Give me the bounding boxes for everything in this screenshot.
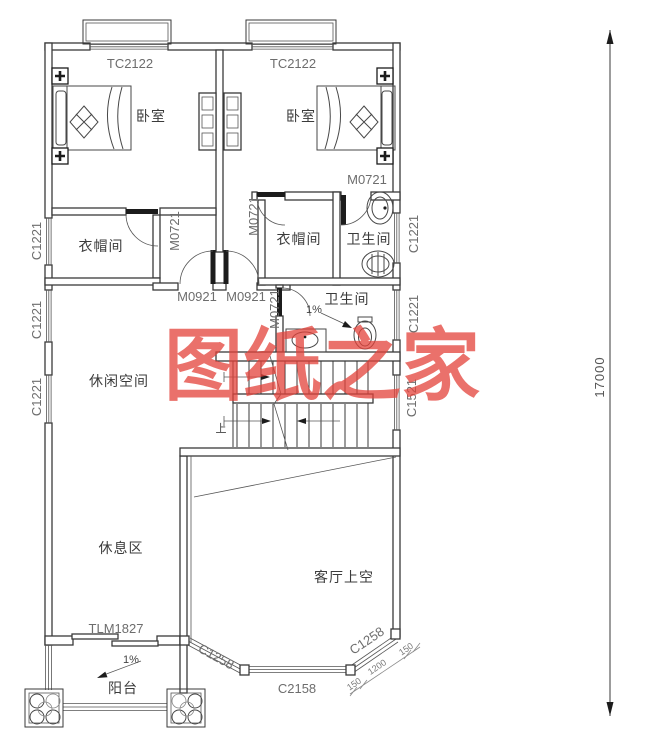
dimension-17000 [607, 30, 614, 716]
label-cloakroom-right: 衣帽间 [277, 231, 322, 247]
label-dim-1200: 1200 [366, 657, 388, 676]
right-wall-windows [395, 213, 400, 430]
door-m0921-right [224, 250, 260, 284]
slope-arrow-bathroom [321, 313, 352, 328]
label-balcony: 阳台 [108, 680, 138, 696]
label-door-m0721-bath-mid: M0721 [267, 289, 282, 329]
wardrobe-right [224, 93, 241, 150]
label-door-tlm1827: TLM1827 [89, 621, 144, 636]
label-bathroom-top: 卫生间 [347, 231, 392, 247]
label-door-m0721-bath-top: M0721 [347, 172, 387, 187]
door-bathroom-top [341, 195, 371, 225]
label-window-c2158: C2158 [278, 681, 316, 696]
staircase [224, 356, 373, 450]
label-bedroom-right: 卧室 [286, 108, 316, 124]
label-living-void: 客厅上空 [314, 569, 374, 585]
bay-window-top-left [83, 20, 171, 49]
label-leisure-space: 休闲空间 [89, 373, 149, 389]
door-m0921-left [180, 250, 216, 284]
label-door-m0921-right: M0921 [226, 289, 266, 304]
balcony-column-right [167, 689, 205, 727]
label-window-c1521: C1521 [404, 379, 419, 417]
label-slope-bath: 1% [306, 304, 322, 316]
floor-plan-canvas: TC2122 TC2122 卧室 卧室 M0721 M0721 M0721 M0… [0, 0, 650, 746]
floor-plan-drawing: TC2122 TC2122 卧室 卧室 M0721 M0721 M0721 M0… [0, 0, 650, 746]
bed-right [317, 86, 395, 150]
wardrobe-left [199, 93, 216, 150]
label-stairs-up: 上 [216, 422, 227, 435]
label-window-c1221-right-1: C1221 [406, 215, 421, 253]
label-dim-150-a: 150 [345, 676, 363, 693]
label-door-m0921-left: M0921 [177, 289, 217, 304]
left-wall-windows [47, 218, 52, 423]
label-door-m0721-cloak-left: M0721 [167, 211, 182, 251]
void-diagonal-line [194, 457, 396, 497]
balcony-column-left [25, 689, 63, 727]
label-bedroom-left: 卧室 [136, 108, 166, 124]
label-window-c1258-right: C1258 [347, 624, 387, 658]
label-door-m0721-cloak-right: M0721 [246, 196, 261, 236]
label-cloakroom-left: 衣帽间 [79, 238, 124, 254]
label-window-tc2122-left: TC2122 [107, 56, 153, 71]
label-bathroom-mid: 卫生间 [325, 291, 370, 307]
label-window-c1258-left: C1258 [196, 641, 237, 673]
label-slope-balcony: 1% [123, 654, 139, 666]
label-window-c1221-left-3: C1221 [29, 378, 44, 416]
label-window-c1221-right-2: C1221 [406, 295, 421, 333]
bed-left [53, 86, 131, 150]
label-window-tc2122-right: TC2122 [270, 56, 316, 71]
bathroom-mid-fixtures [286, 317, 376, 352]
label-window-c1221-left-1: C1221 [29, 222, 44, 260]
label-window-c1221-left-2: C1221 [29, 301, 44, 339]
label-dimension-17000: 17000 [592, 356, 607, 397]
label-dim-150-b: 150 [397, 641, 415, 658]
bay-window-top-right [246, 20, 336, 49]
label-rest-area: 休息区 [99, 540, 144, 556]
